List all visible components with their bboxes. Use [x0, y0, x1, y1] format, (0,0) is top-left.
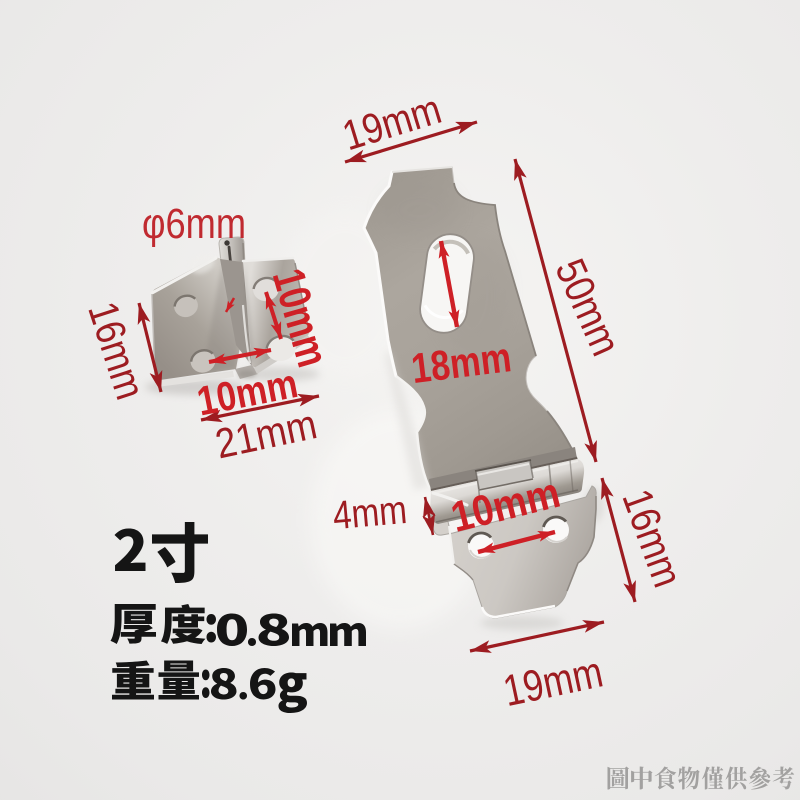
svg-text:φ6mm: φ6mm	[142, 200, 246, 248]
svg-text:4mm: 4mm	[331, 488, 409, 538]
